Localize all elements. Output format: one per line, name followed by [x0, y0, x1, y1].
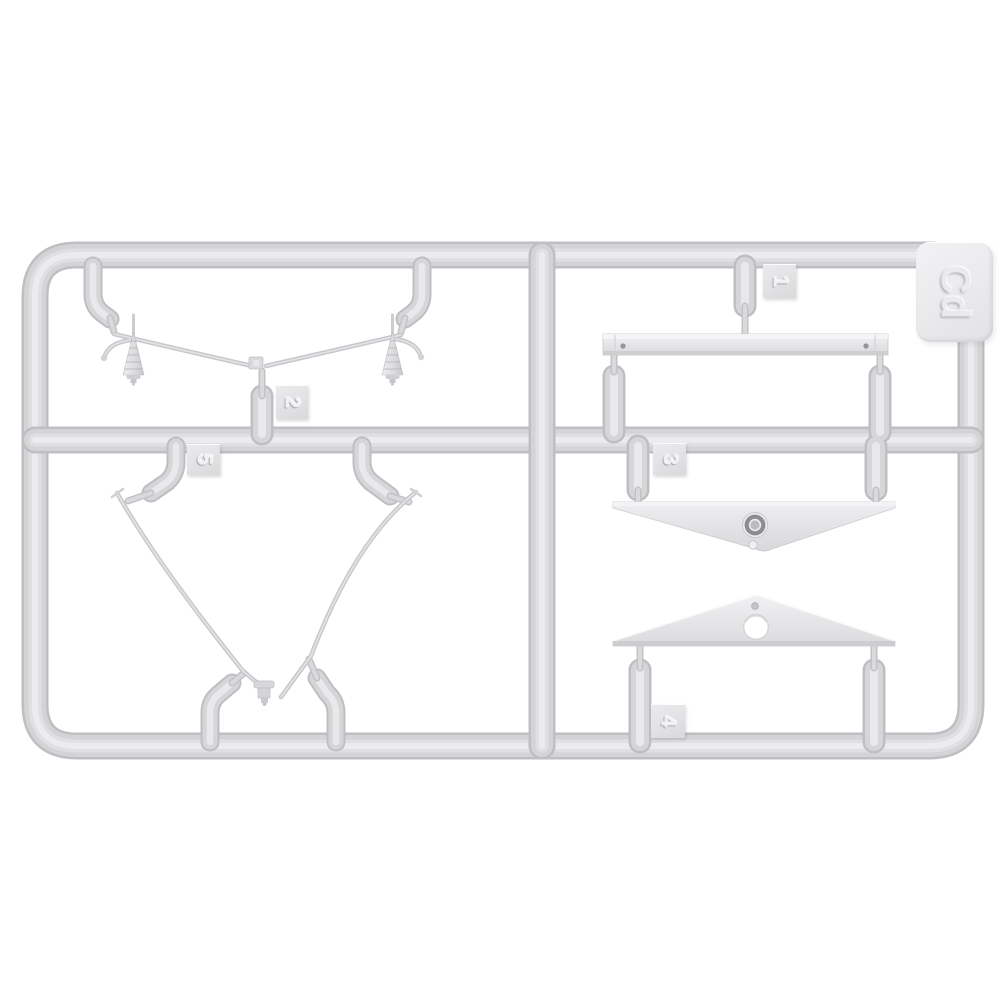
beam-pin-hole-right	[863, 343, 868, 348]
sprue-code-tag: Cd	[916, 242, 993, 342]
part-3-plate-with-hub	[613, 502, 895, 551]
part-tag-2-label: 2	[282, 396, 303, 408]
part-4-plate-with-hole	[613, 595, 895, 646]
hub-center	[750, 520, 759, 529]
sprue-photo: 1 2 3 4 5 Cd	[0, 0, 1000, 1000]
part-tag-2: 2	[276, 385, 308, 419]
cable-vertex-shackle	[254, 681, 274, 706]
part-tag-1: 1	[763, 264, 796, 298]
sprue-code-label: Cd	[932, 264, 977, 319]
part-tag-4: 4	[651, 704, 685, 738]
runner-frame	[35, 255, 971, 746]
part-tag-1-label: 1	[769, 275, 790, 287]
part-tag-5-label: 5	[193, 454, 214, 466]
plate-small-rivet	[752, 603, 759, 610]
wire-hook-end-left	[101, 355, 107, 361]
part-1-beam	[603, 334, 888, 355]
part-5-tow-cable	[112, 489, 421, 706]
part-tag-3: 3	[653, 443, 686, 475]
antenna-center-fitting	[249, 357, 263, 369]
wire-hook-end-right	[418, 354, 424, 360]
cable-tip-right	[414, 490, 418, 494]
part-tag-5: 5	[187, 444, 220, 475]
sprue-drawing	[0, 0, 1000, 1000]
beam-pin-hole-left	[620, 343, 625, 348]
hub-rivet	[749, 541, 757, 549]
part-tag-4-label: 4	[658, 715, 679, 727]
cable-tip-left	[115, 491, 119, 495]
part-tag-3-label: 3	[659, 453, 680, 465]
spring-cone-left	[123, 315, 144, 386]
